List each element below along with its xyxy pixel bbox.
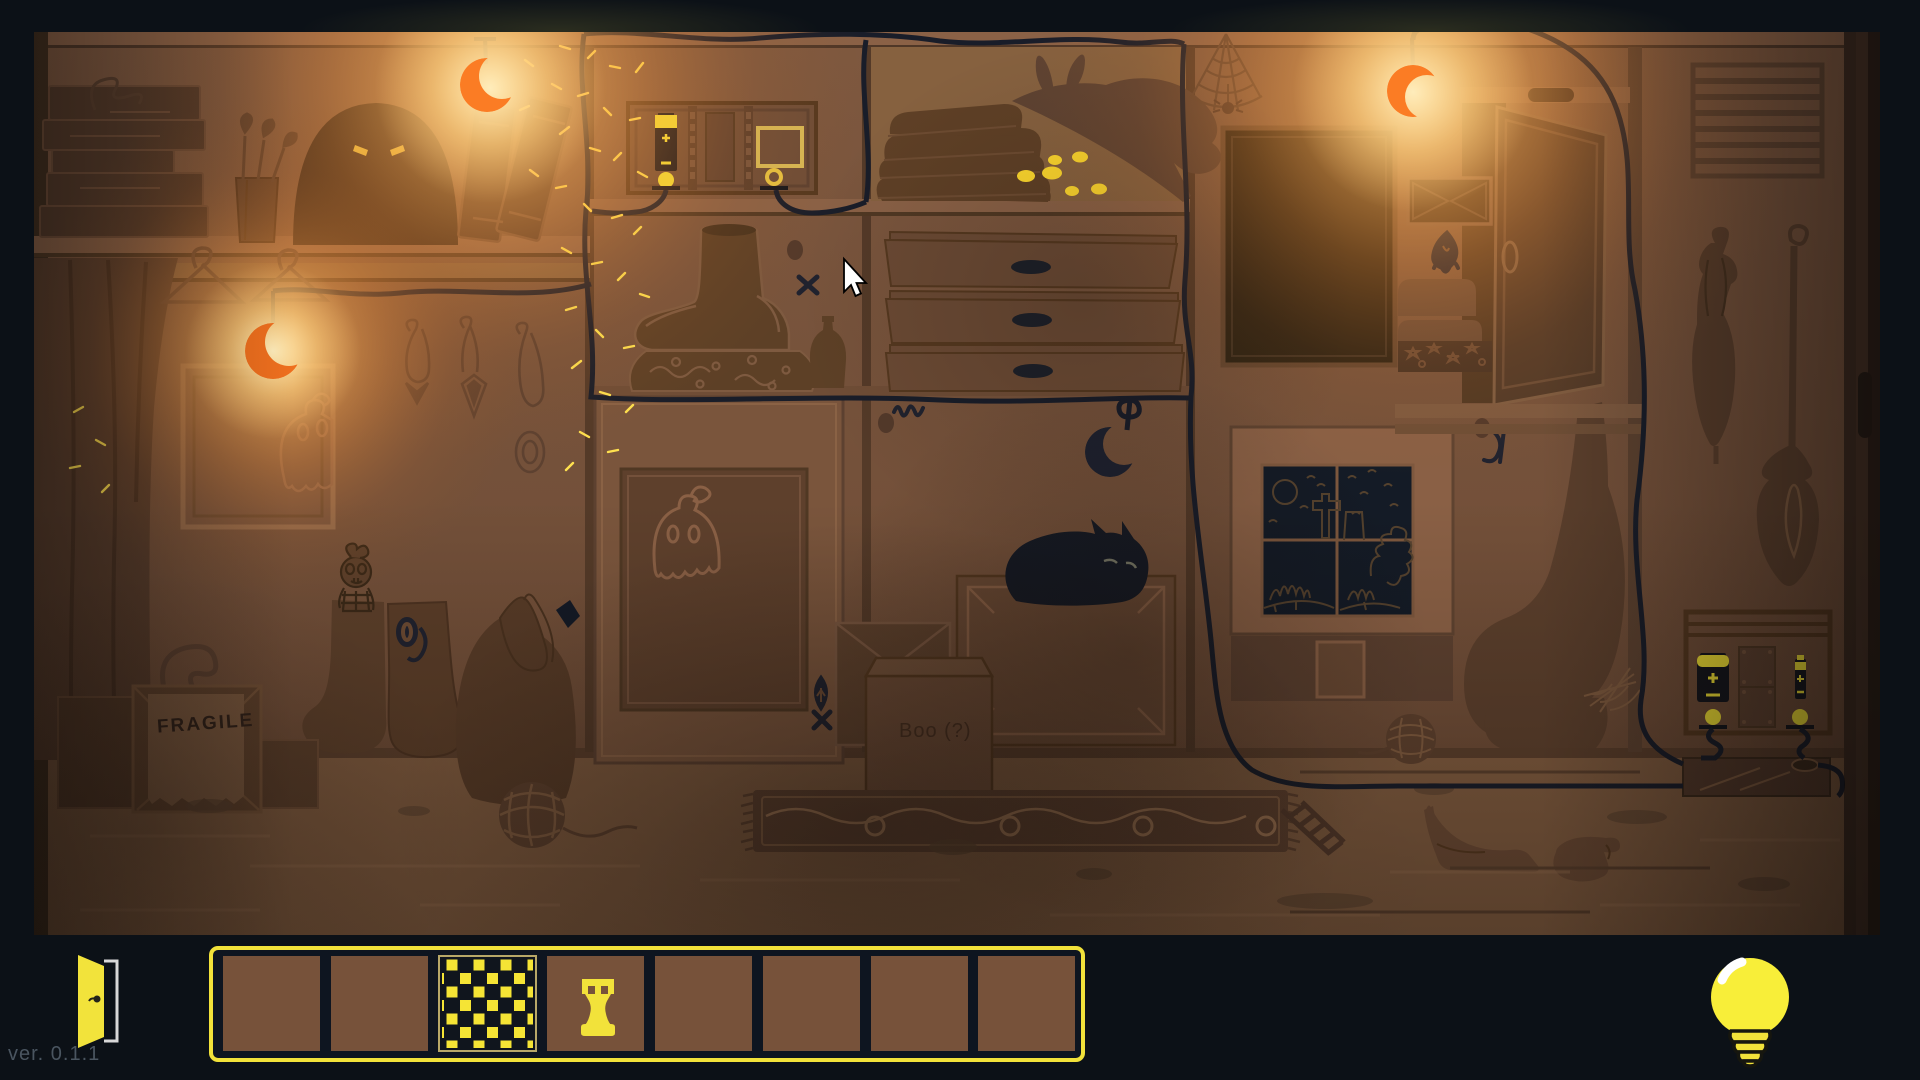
- svg-text:ver. 0.1.1: ver. 0.1.1: [8, 1043, 100, 1065]
